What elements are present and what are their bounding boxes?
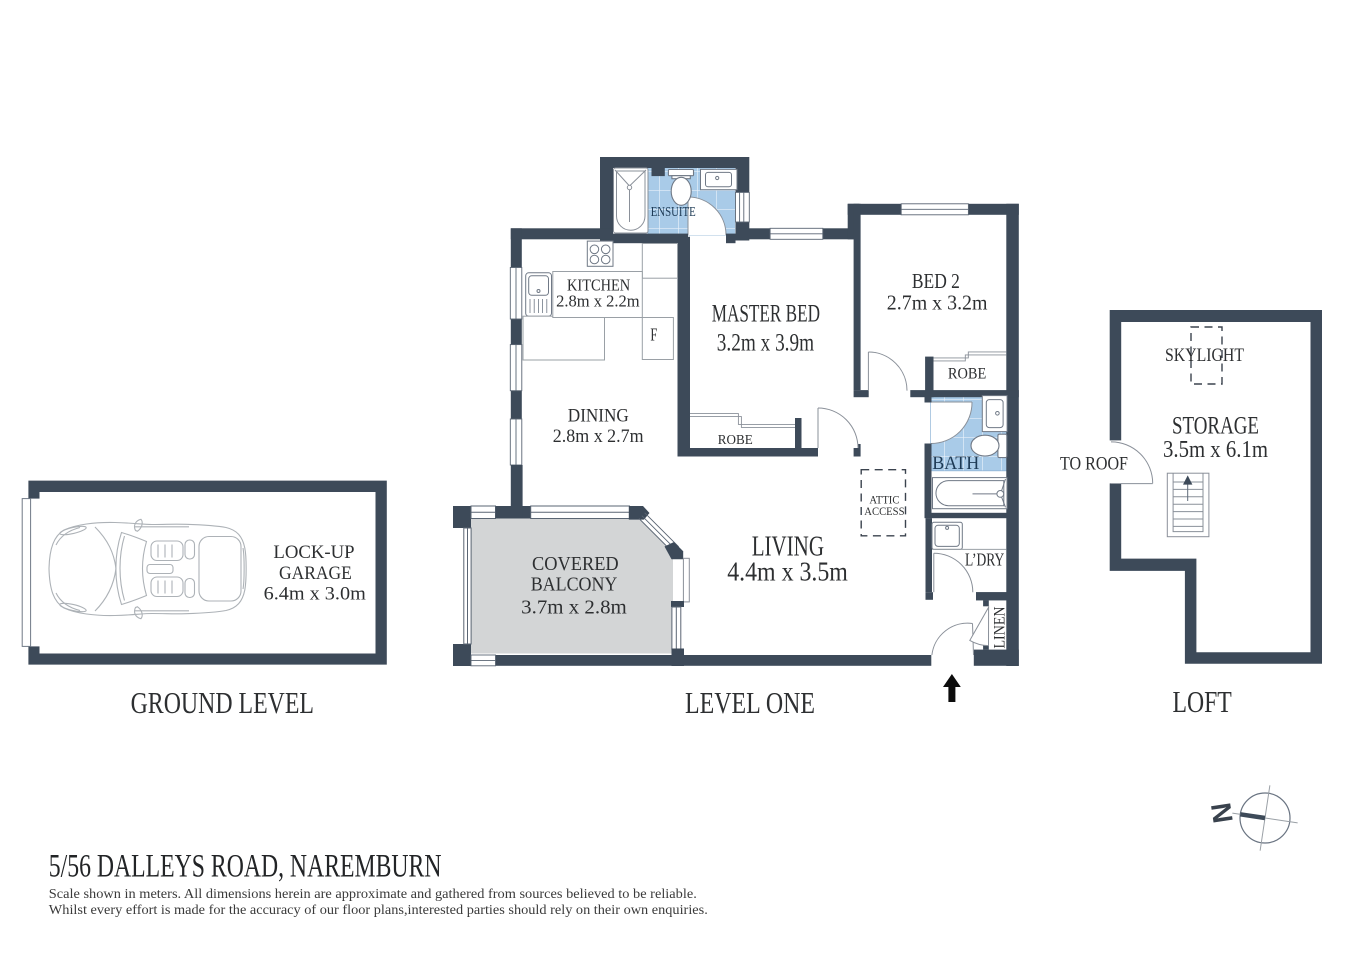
svg-text:6.4m x 3.0m: 6.4m x 3.0m	[264, 584, 366, 605]
svg-text:GARAGE: GARAGE	[279, 563, 352, 584]
svg-text:3.2m x 3.9m: 3.2m x 3.9m	[717, 330, 815, 357]
svg-text:L’DRY: L’DRY	[965, 549, 1005, 569]
svg-text:LEVEL ONE: LEVEL ONE	[685, 685, 815, 720]
svg-text:3.5m x 6.1m: 3.5m x 6.1m	[1163, 437, 1268, 463]
svg-text:ACCESS: ACCESS	[864, 504, 904, 518]
svg-text:ROBE: ROBE	[718, 433, 753, 448]
svg-text:Scale shown in meters. All dim: Scale shown in meters. All dimensions he…	[49, 886, 697, 901]
svg-text:GROUND LEVEL: GROUND LEVEL	[131, 685, 314, 720]
svg-text:TO ROOF: TO ROOF	[1060, 455, 1128, 475]
svg-text:DINING: DINING	[568, 407, 629, 427]
svg-text:COVERED: COVERED	[532, 553, 619, 575]
svg-text:LINEN: LINEN	[992, 607, 1009, 649]
svg-text:BATH: BATH	[932, 453, 979, 474]
svg-text:ENSUITE: ENSUITE	[651, 204, 696, 219]
svg-text:4.4m x 3.5m: 4.4m x 3.5m	[727, 557, 848, 587]
svg-text:ROBE: ROBE	[948, 365, 986, 382]
svg-text:LOFT: LOFT	[1173, 684, 1232, 719]
svg-text:BALCONY: BALCONY	[531, 573, 618, 595]
svg-text:LOCK-UP: LOCK-UP	[273, 542, 354, 563]
svg-text:SKYLIGHT: SKYLIGHT	[1165, 345, 1244, 366]
svg-text:MASTER BED: MASTER BED	[712, 299, 820, 328]
svg-text:STORAGE: STORAGE	[1172, 413, 1259, 440]
svg-text:Whilst every effort is made fo: Whilst every effort is made for the accu…	[49, 902, 708, 917]
svg-text:2.7m x 3.2m: 2.7m x 3.2m	[887, 291, 988, 315]
svg-text:BED 2: BED 2	[912, 269, 960, 293]
svg-text:3.7m x 2.8m: 3.7m x 2.8m	[521, 597, 627, 619]
svg-text:2.8m x 2.2m: 2.8m x 2.2m	[556, 292, 640, 311]
svg-text:F: F	[650, 325, 657, 345]
svg-text:2.8m x 2.7m: 2.8m x 2.7m	[553, 427, 644, 447]
svg-text:5/56 DALLEYS ROAD, NAREMBURN: 5/56 DALLEYS ROAD, NAREMBURN	[49, 849, 442, 885]
